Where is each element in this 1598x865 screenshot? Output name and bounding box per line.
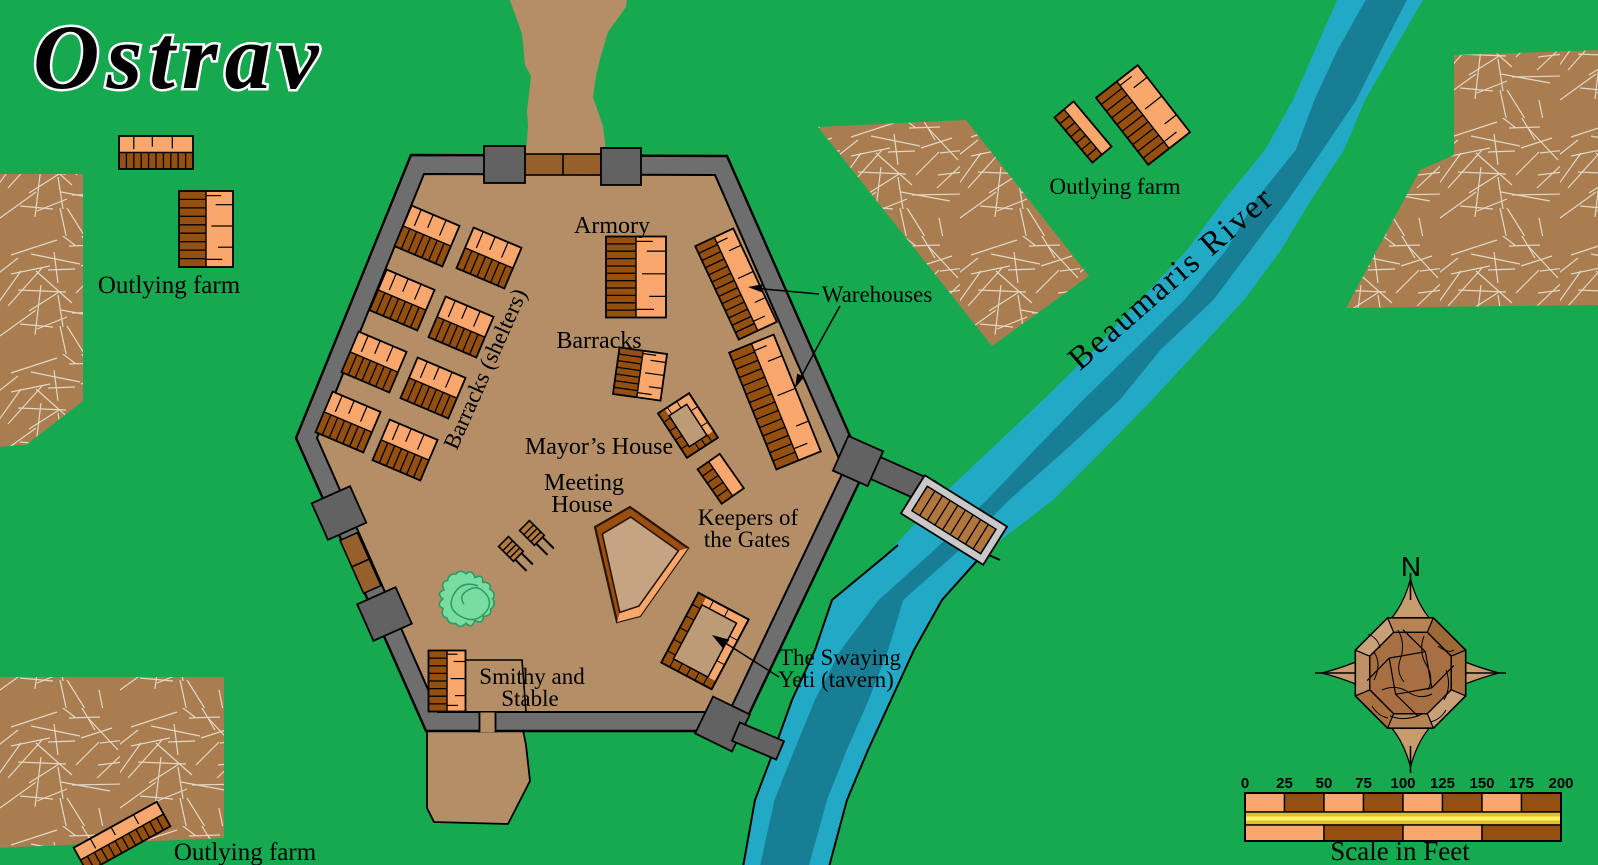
svg-text:150: 150: [1469, 775, 1494, 792]
svg-text:Ostrav: Ostrav: [33, 6, 325, 108]
svg-text:Outlying farm: Outlying farm: [98, 272, 241, 299]
svg-text:0: 0: [1241, 775, 1249, 792]
svg-text:Armory: Armory: [574, 213, 650, 239]
svg-text:100: 100: [1390, 775, 1415, 792]
svg-text:50: 50: [1316, 775, 1333, 792]
svg-text:125: 125: [1430, 775, 1455, 792]
svg-text:Outlying farm: Outlying farm: [174, 839, 317, 865]
svg-text:Mayor’s House: Mayor’s House: [525, 434, 673, 460]
svg-text:Scale in Feet: Scale in Feet: [1330, 836, 1470, 865]
svg-text:Outlying farm: Outlying farm: [1050, 174, 1181, 199]
svg-text:75: 75: [1355, 775, 1372, 792]
svg-text:200: 200: [1548, 775, 1573, 792]
svg-text:N: N: [1401, 551, 1421, 582]
svg-text:25: 25: [1276, 775, 1293, 792]
svg-text:Barracks: Barracks: [556, 328, 641, 354]
svg-text:House: House: [551, 492, 612, 518]
svg-text:Stable: Stable: [501, 686, 559, 711]
svg-text:the Gates: the Gates: [704, 527, 790, 552]
svg-text:Warehouses: Warehouses: [822, 282, 933, 307]
svg-text:175: 175: [1509, 775, 1534, 792]
svg-text:Yeti (tavern): Yeti (tavern): [778, 667, 894, 692]
